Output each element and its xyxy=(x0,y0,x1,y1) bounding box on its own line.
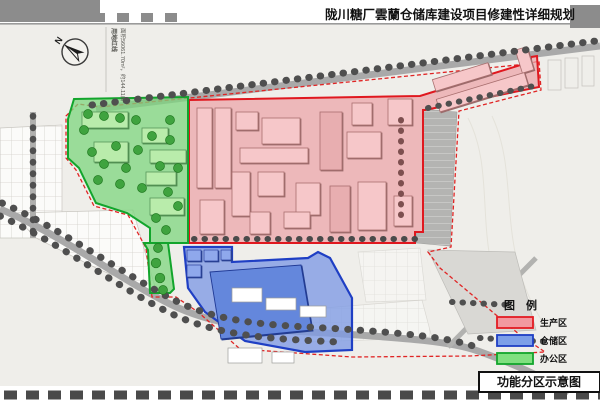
red-line-label: 用地红线 xyxy=(110,27,118,52)
legend-swatch-office xyxy=(497,353,533,364)
legend-item-office: 办公区 xyxy=(497,353,567,364)
frame-block-topleft xyxy=(0,0,100,22)
legend-item-production: 生产区 xyxy=(497,317,567,328)
legend-label-production: 生产区 xyxy=(540,317,567,328)
area-label: 面积56061.70m²，约144.11亩 xyxy=(119,28,127,102)
legend-item-storage: 仓储区 xyxy=(497,335,567,346)
caption-text: 功能分区示意图 xyxy=(497,374,581,389)
site-plan-drawing: N 用地红线 面积56061.70m²，约144.11亩 陇川糖厂雲蘭仓储库建设… xyxy=(0,0,600,400)
legend-label-office: 办公区 xyxy=(540,353,567,364)
legend-swatch-production xyxy=(497,317,533,328)
sheet-top-rule xyxy=(0,23,600,25)
tree-row-east-1 xyxy=(452,302,512,305)
plan-sheet: N 用地红线 面积56061.70m²，约144.11亩 陇川糖厂雲蘭仓储库建设… xyxy=(0,0,600,400)
drawing-title: 陇川糖厂雲蘭仓储库建设项目修建性详细规划 xyxy=(325,7,575,22)
legend-label-storage: 仓储区 xyxy=(539,335,567,346)
legend-swatch-storage xyxy=(497,335,533,346)
caption-box: 功能分区示意图 xyxy=(479,372,600,392)
legend-title: 图 例 xyxy=(504,298,541,312)
